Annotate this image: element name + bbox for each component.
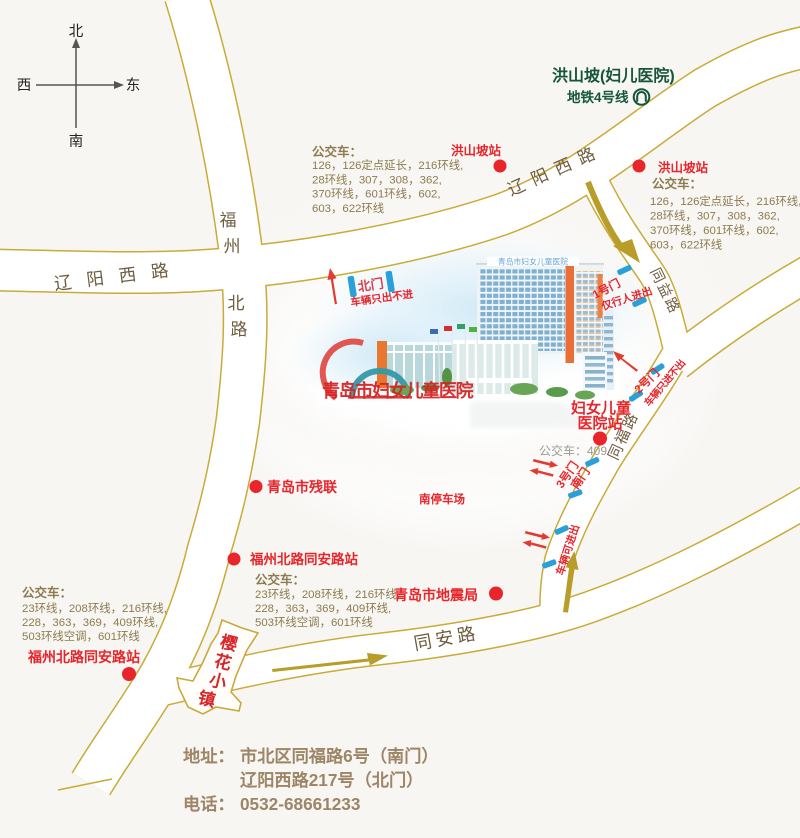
svg-text:东: 东 bbox=[126, 77, 141, 94]
svg-text:医院站: 医院站 bbox=[577, 414, 622, 432]
svg-text:青岛市妇女儿童医院: 青岛市妇女儿童医院 bbox=[322, 380, 474, 401]
svg-text:503环线空调，601环线: 503环线空调，601环线 bbox=[22, 629, 140, 643]
svg-text:路: 路 bbox=[231, 320, 248, 339]
svg-text:23环线，208环线，216环线,: 23环线，208环线，216环线, bbox=[22, 601, 167, 615]
svg-text:28环线，307，308，362,: 28环线，307，308，362, bbox=[650, 209, 780, 223]
svg-text:23环线，208环线，216环线,: 23环线，208环线，216环线, bbox=[255, 587, 400, 601]
svg-text:228，363，369，409环线,: 228，363，369，409环线, bbox=[255, 601, 391, 615]
svg-text:503环线空调，601环线: 503环线空调，601环线 bbox=[255, 615, 373, 629]
svg-text:0532-68661233: 0532-68661233 bbox=[240, 794, 360, 814]
svg-text:126，126定点延长，216环线,: 126，126定点延长，216环线, bbox=[312, 158, 463, 172]
svg-text:公交车：409: 公交车：409 bbox=[539, 443, 607, 458]
svg-text:青岛市妇女儿童医院: 青岛市妇女儿童医院 bbox=[498, 257, 568, 267]
svg-text:南停车场: 南停车场 bbox=[419, 492, 465, 506]
svg-text:洪山坡(妇儿医院): 洪山坡(妇儿医院) bbox=[552, 66, 675, 85]
svg-text:福州北路同安路站: 福州北路同安路站 bbox=[27, 649, 140, 665]
svg-text:青岛市残联: 青岛市残联 bbox=[267, 479, 338, 495]
svg-text:公交车：: 公交车： bbox=[652, 176, 702, 191]
svg-text:228，363，369，409环线,: 228，363，369，409环线, bbox=[22, 615, 158, 629]
svg-text:青岛市地震局: 青岛市地震局 bbox=[394, 587, 478, 603]
svg-text:福: 福 bbox=[220, 211, 237, 230]
svg-text:市北区同福路6号（南门）: 市北区同福路6号（南门） bbox=[240, 746, 439, 766]
svg-text:州: 州 bbox=[224, 237, 241, 256]
svg-text:洪山坡站: 洪山坡站 bbox=[451, 143, 502, 158]
svg-text:公交车：: 公交车： bbox=[22, 585, 72, 600]
svg-text:603，622环线: 603，622环线 bbox=[650, 238, 722, 252]
svg-text:北: 北 bbox=[69, 23, 84, 40]
svg-text:西: 西 bbox=[17, 78, 32, 94]
svg-text:福州北路同安路站: 福州北路同安路站 bbox=[249, 551, 358, 567]
svg-text:地铁4号线: 地铁4号线 bbox=[567, 89, 629, 105]
svg-text:电话：: 电话： bbox=[183, 794, 235, 814]
svg-text:603，622环线: 603，622环线 bbox=[312, 201, 384, 215]
svg-text:辽阳西路217号（北门）: 辽阳西路217号（北门） bbox=[240, 770, 423, 790]
svg-text:公交车：: 公交车： bbox=[255, 572, 305, 587]
svg-text:370环线，601环线，602,: 370环线，601环线，602, bbox=[312, 187, 441, 201]
svg-text:公交车：: 公交车： bbox=[312, 144, 362, 159]
svg-text:洪山坡站: 洪山坡站 bbox=[658, 160, 709, 175]
svg-text:370环线，601环线，602,: 370环线，601环线，602, bbox=[650, 223, 779, 237]
svg-text:地址：: 地址： bbox=[183, 746, 235, 766]
svg-text:28环线，307，308，362,: 28环线，307，308，362, bbox=[312, 173, 442, 187]
svg-text:126，126定点延长，216环线,: 126，126定点延长，216环线, bbox=[650, 194, 800, 208]
svg-text:南: 南 bbox=[69, 133, 84, 150]
svg-text:北: 北 bbox=[228, 294, 245, 313]
